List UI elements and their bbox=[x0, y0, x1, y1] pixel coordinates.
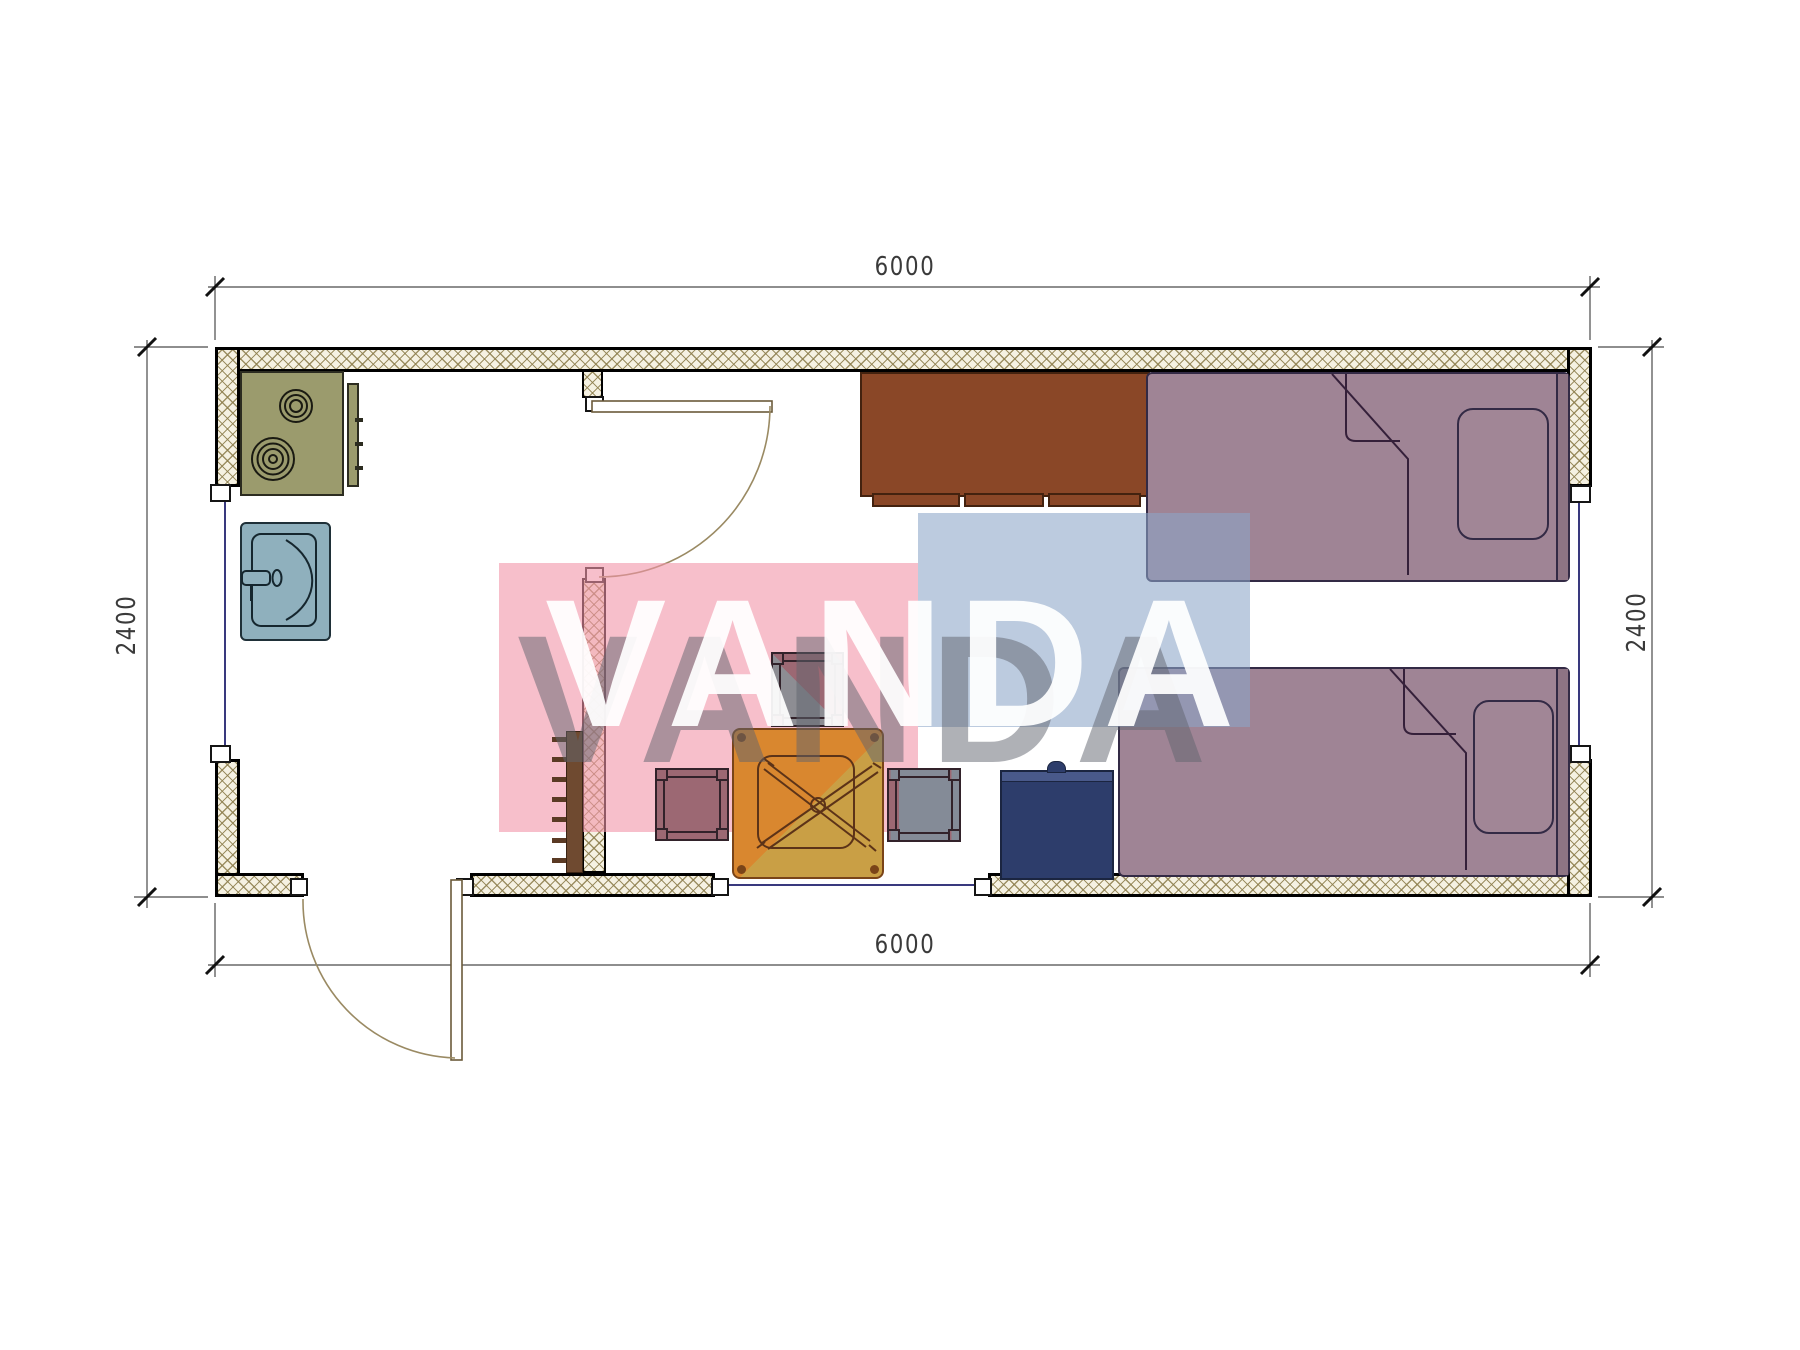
floor-plan-page: { "plan": { "type": "container-house-flo… bbox=[0, 0, 1800, 1350]
watermark-text: VANDA bbox=[545, 558, 1249, 768]
